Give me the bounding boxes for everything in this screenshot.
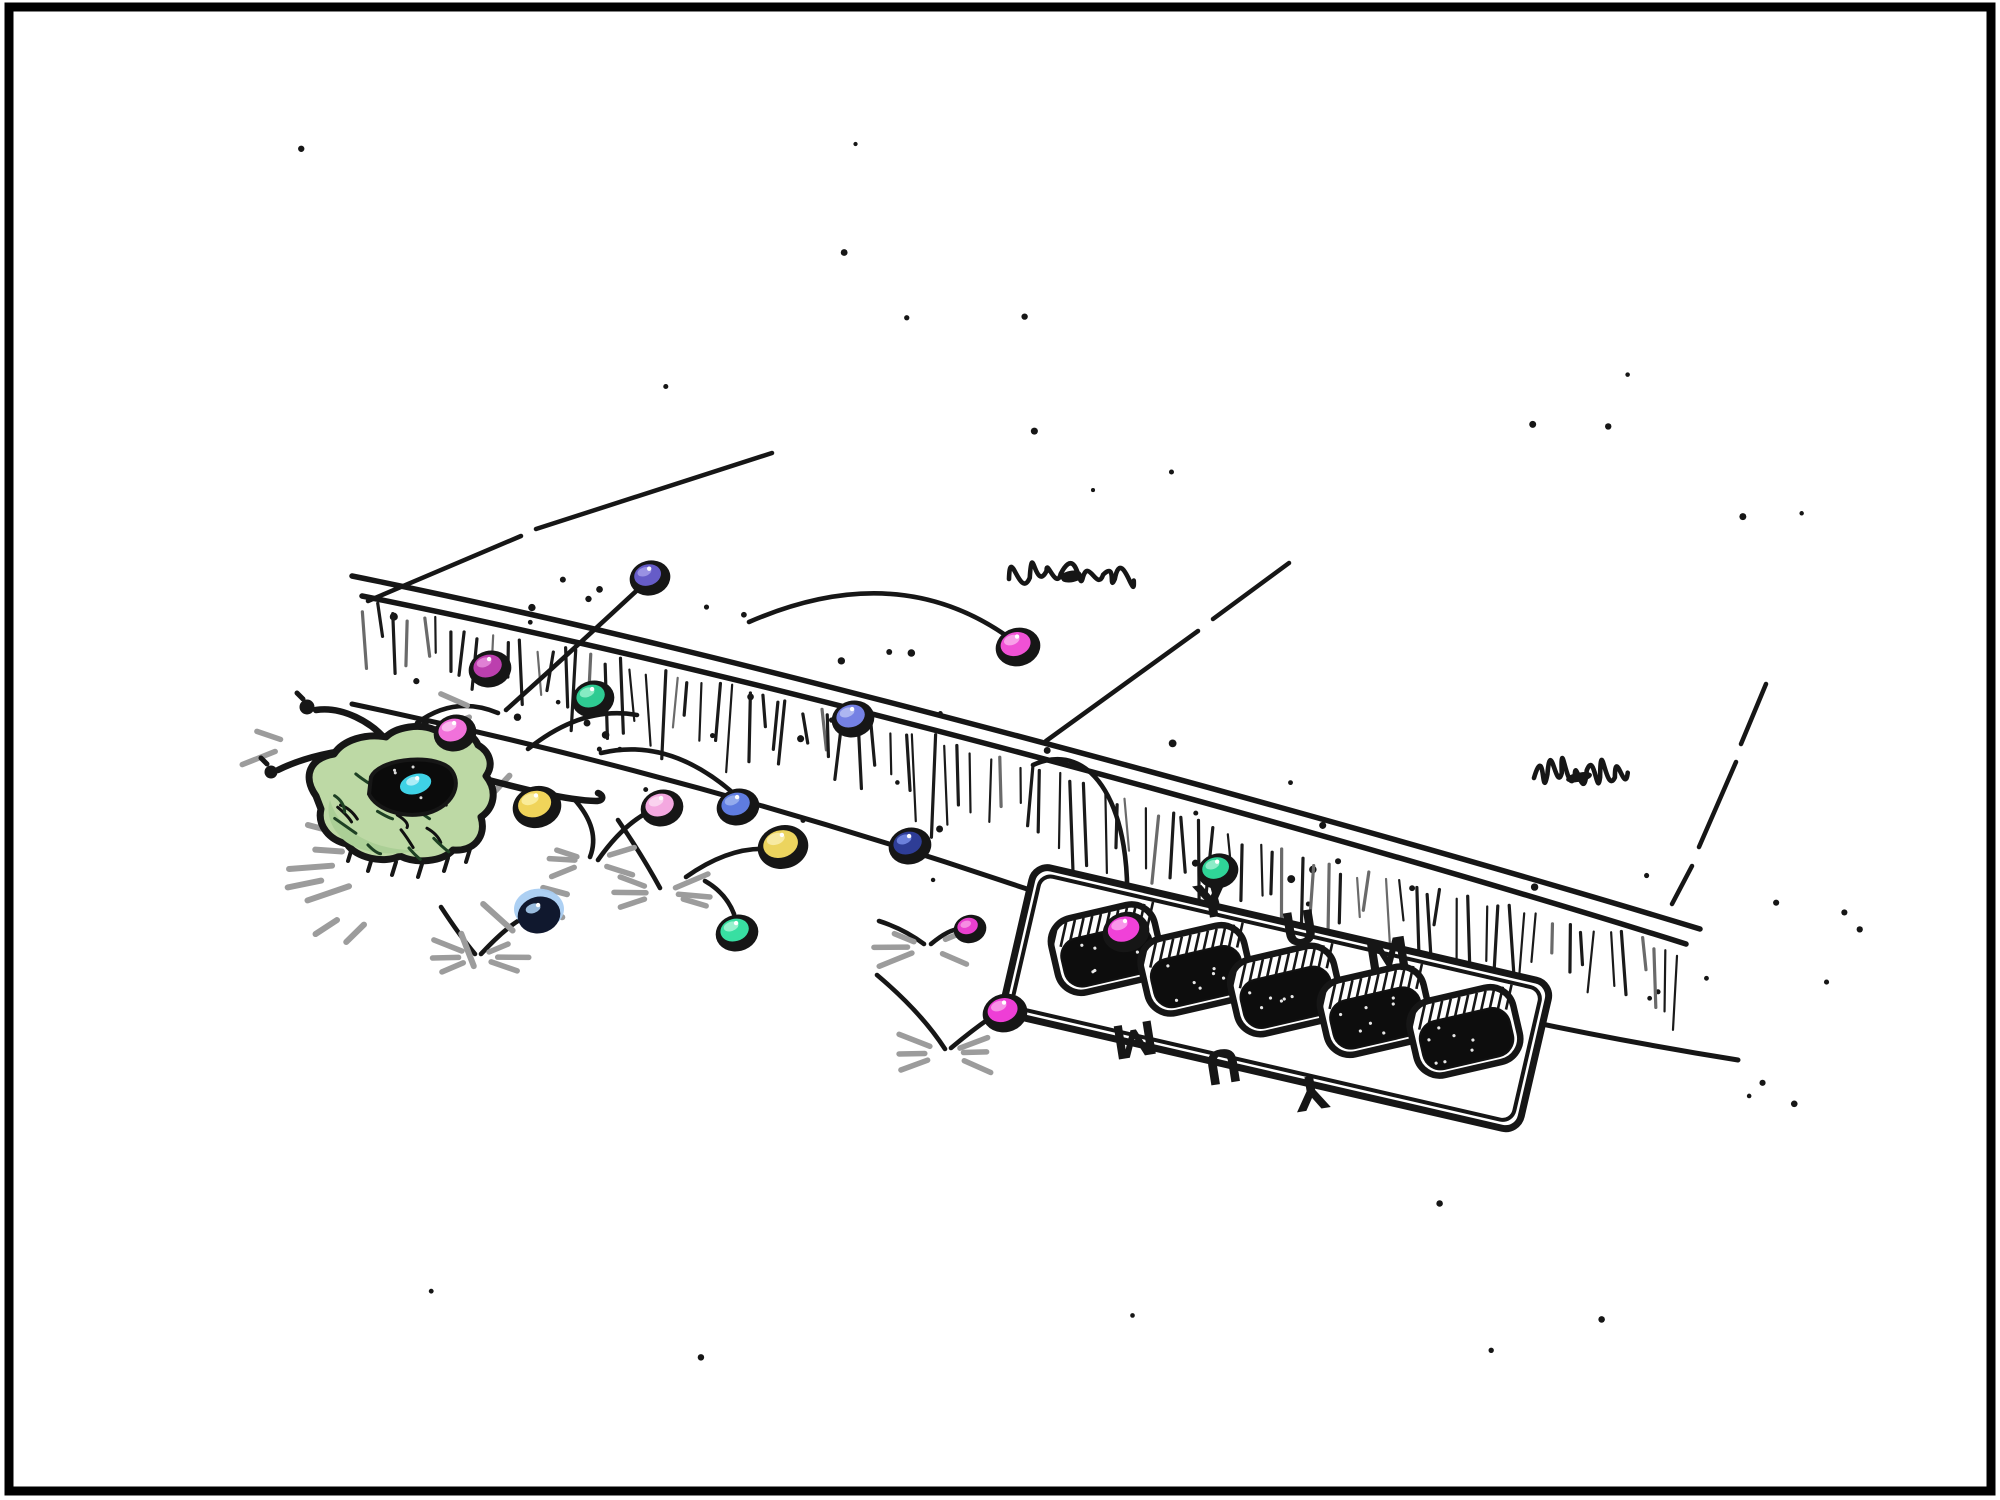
pouch-halo-stroke bbox=[316, 920, 338, 934]
hatch-stroke bbox=[1357, 878, 1360, 917]
texture-dot bbox=[1647, 996, 1652, 1001]
hatch-stroke bbox=[1643, 938, 1646, 970]
bead-glint bbox=[850, 707, 854, 711]
hatch-stroke bbox=[1399, 880, 1403, 920]
hatch-stroke bbox=[1170, 813, 1174, 878]
hatch-stroke bbox=[1339, 874, 1340, 922]
pouch-halo-stroke bbox=[307, 886, 349, 900]
texture-dot bbox=[1704, 976, 1709, 981]
bead bbox=[514, 889, 565, 938]
bead-glint bbox=[452, 721, 456, 725]
hatch-stroke bbox=[1665, 950, 1666, 1011]
impact-splash bbox=[901, 1060, 928, 1070]
texture-dot bbox=[1409, 885, 1415, 891]
texture-dot bbox=[1531, 883, 1538, 890]
cartoon-canvas: Y U M M U Y bbox=[0, 0, 2000, 1500]
texture-dot bbox=[1287, 875, 1295, 883]
bead-glint bbox=[590, 687, 594, 691]
bead-glint bbox=[735, 795, 739, 799]
texture-dot bbox=[1791, 1100, 1798, 1107]
impact-splash bbox=[434, 940, 462, 951]
impact-splash bbox=[433, 957, 459, 958]
texture-dot bbox=[663, 384, 668, 389]
texture-dot bbox=[886, 649, 892, 655]
hatch-stroke bbox=[538, 652, 542, 695]
texture-dot bbox=[1773, 900, 1779, 906]
texture-dot bbox=[1031, 428, 1038, 435]
texture-dot bbox=[1288, 780, 1293, 785]
opening-speck bbox=[419, 796, 422, 799]
bead-glint bbox=[780, 833, 784, 837]
texture-dot bbox=[853, 142, 857, 146]
hatch-stroke bbox=[773, 702, 778, 749]
hatch-stroke bbox=[957, 745, 959, 804]
joint-line bbox=[1046, 563, 1289, 741]
texture-dot bbox=[931, 878, 935, 882]
texture-dot bbox=[584, 720, 591, 727]
texture-dot bbox=[741, 612, 747, 618]
texture-dot bbox=[797, 735, 804, 742]
impact-splash bbox=[491, 962, 517, 971]
impact-splash bbox=[899, 1053, 925, 1054]
hatch-stroke bbox=[989, 759, 991, 821]
hatch-stroke bbox=[1271, 852, 1272, 894]
impact-splash bbox=[683, 899, 706, 906]
bead bbox=[713, 784, 764, 830]
hatch-stroke bbox=[1588, 932, 1594, 993]
texture-dot bbox=[1625, 372, 1630, 377]
impact-splash bbox=[441, 694, 467, 706]
hatch-stroke bbox=[393, 614, 395, 674]
hatch-stroke bbox=[1181, 817, 1185, 872]
trajectory-arc bbox=[601, 749, 732, 792]
hatch-stroke bbox=[1083, 783, 1086, 865]
grate-letter: M bbox=[1108, 1009, 1162, 1069]
bead-glint bbox=[536, 903, 540, 907]
pouch-fringe bbox=[392, 862, 396, 875]
texture-dot bbox=[1335, 858, 1341, 864]
hatch-stroke bbox=[970, 753, 971, 812]
texture-dot bbox=[1021, 313, 1027, 319]
hatch-stroke bbox=[1241, 845, 1242, 900]
texture-dot bbox=[298, 146, 304, 152]
ink-scribbles bbox=[1009, 563, 1628, 785]
hatch-stroke bbox=[1519, 913, 1524, 979]
texture-dot bbox=[528, 604, 535, 611]
impact-splash bbox=[678, 894, 710, 897]
hatch-stroke bbox=[646, 675, 651, 746]
hatch-stroke bbox=[1261, 845, 1262, 896]
impact-splash bbox=[607, 866, 633, 874]
impact-splash bbox=[257, 731, 281, 739]
bead-glint bbox=[1002, 1000, 1006, 1004]
texture-dot bbox=[1319, 822, 1326, 829]
trajectory-arc bbox=[879, 921, 924, 944]
bead-glint bbox=[1215, 859, 1219, 863]
hatch-stroke bbox=[662, 671, 666, 759]
hatch-stroke bbox=[620, 658, 623, 733]
bead-glint bbox=[415, 776, 419, 780]
hatch-stroke bbox=[1531, 913, 1535, 961]
hatch-stroke bbox=[1552, 924, 1553, 953]
texture-dot bbox=[1759, 1080, 1765, 1086]
impact-splash bbox=[899, 1034, 930, 1046]
texture-dot bbox=[1091, 488, 1095, 492]
bead-glint bbox=[1123, 919, 1127, 923]
texture-dot bbox=[841, 249, 848, 256]
impact-splash bbox=[943, 954, 967, 964]
texture-dot bbox=[1605, 423, 1611, 429]
texture-dot bbox=[585, 596, 591, 602]
hatch-stroke bbox=[378, 603, 383, 636]
texture-dot bbox=[1489, 1348, 1494, 1353]
cord-knot bbox=[265, 766, 278, 779]
hatch-stroke bbox=[425, 618, 430, 656]
texture-dot bbox=[514, 713, 521, 720]
impact-splash bbox=[620, 877, 644, 886]
hatch-stroke bbox=[459, 632, 464, 675]
hatch-stroke bbox=[907, 735, 910, 790]
texture-dot bbox=[413, 678, 419, 684]
cord-knot-tail bbox=[297, 693, 303, 699]
texture-dot bbox=[698, 1354, 704, 1360]
impact-splash bbox=[552, 867, 575, 876]
hatch-stroke bbox=[749, 693, 750, 762]
texture-dot bbox=[1193, 811, 1198, 816]
hatch-stroke bbox=[1654, 949, 1656, 1008]
trajectory-arc bbox=[749, 593, 1015, 642]
bead-glint bbox=[907, 834, 911, 838]
hatch-stroke bbox=[763, 695, 765, 726]
opening-speck bbox=[393, 769, 396, 772]
cord-knot bbox=[300, 700, 315, 715]
impact-splash bbox=[964, 1061, 990, 1073]
hatch-stroke bbox=[716, 683, 721, 740]
hatch-stroke bbox=[890, 733, 891, 774]
opening-speck bbox=[394, 771, 397, 774]
texture-dot bbox=[908, 649, 916, 657]
opening-speck bbox=[412, 765, 415, 768]
texture-dot bbox=[1130, 1313, 1135, 1318]
cord-knot-tail bbox=[261, 758, 267, 764]
texture-dot bbox=[1436, 1200, 1443, 1207]
pouch-halo-stroke bbox=[289, 866, 332, 869]
hatch-stroke bbox=[1363, 872, 1369, 910]
hatch-stroke bbox=[1070, 781, 1073, 876]
hatch-stroke bbox=[778, 701, 784, 764]
joint-line bbox=[1672, 684, 1766, 904]
pouch-halo-stroke bbox=[346, 925, 364, 942]
hatch-stroke bbox=[406, 621, 407, 666]
hatch-stroke bbox=[1509, 905, 1514, 978]
texture-dot bbox=[556, 700, 561, 705]
texture-dot bbox=[1169, 469, 1174, 474]
bead bbox=[712, 910, 763, 956]
sidewalk-expansion-joints bbox=[368, 453, 1766, 904]
hatch-stroke bbox=[1000, 757, 1001, 806]
bead-glint bbox=[1015, 634, 1019, 638]
bead bbox=[951, 911, 990, 946]
bead bbox=[753, 820, 813, 874]
impact-splash bbox=[620, 899, 644, 907]
hatch-stroke bbox=[912, 734, 916, 821]
texture-dot bbox=[1644, 873, 1649, 878]
pouch-halo-stroke bbox=[483, 904, 512, 930]
impact-splash bbox=[557, 850, 577, 857]
hatch-stroke bbox=[1434, 889, 1439, 924]
hatch-stroke bbox=[726, 685, 732, 772]
cartoon-page: Y U M M U Y bbox=[0, 0, 2000, 1500]
hatch-stroke bbox=[1028, 767, 1033, 825]
texture-dot bbox=[429, 1289, 434, 1294]
hatch-stroke bbox=[1580, 933, 1582, 965]
hatch-stroke bbox=[1486, 906, 1487, 960]
hatch-stroke bbox=[673, 678, 678, 728]
pouch-fringe bbox=[418, 864, 422, 877]
texture-dot bbox=[1841, 909, 1847, 915]
texture-dot bbox=[1739, 513, 1746, 520]
hatch-stroke bbox=[1152, 816, 1159, 883]
texture-dot bbox=[936, 826, 943, 833]
pouch-halo-stroke bbox=[315, 850, 342, 852]
hatch-stroke bbox=[1673, 956, 1677, 1030]
texture-dot bbox=[904, 315, 909, 320]
hatch-stroke bbox=[1611, 932, 1614, 986]
texture-dot bbox=[643, 787, 648, 792]
bead-glint bbox=[647, 566, 651, 570]
bead-glint bbox=[734, 921, 738, 925]
grate-letter: U bbox=[1277, 899, 1322, 958]
texture-dot bbox=[560, 577, 566, 583]
hatch-stroke bbox=[1105, 789, 1107, 873]
hatch-stroke bbox=[1059, 773, 1060, 848]
texture-dot bbox=[1598, 1316, 1605, 1323]
impact-splash bbox=[879, 953, 912, 966]
hatch-stroke bbox=[1038, 770, 1039, 831]
hatch-stroke bbox=[699, 683, 701, 741]
impact-splash bbox=[442, 963, 463, 972]
texture-dot bbox=[1529, 421, 1536, 428]
bead bbox=[885, 823, 936, 869]
grate-letter: U bbox=[1200, 1036, 1245, 1095]
hatch-stroke bbox=[684, 683, 687, 715]
hatch-stroke bbox=[931, 735, 935, 838]
impact-splash bbox=[610, 848, 635, 856]
bead-glint bbox=[534, 793, 538, 797]
texture-dot bbox=[596, 586, 603, 593]
texture-dot bbox=[1747, 1094, 1752, 1099]
texture-dot bbox=[528, 620, 533, 625]
texture-dot bbox=[1824, 980, 1829, 985]
texture-dot bbox=[1044, 747, 1051, 754]
texture-dot bbox=[1169, 739, 1177, 747]
pouch-halo-stroke bbox=[288, 881, 322, 888]
texture-dot bbox=[704, 604, 709, 609]
texture-dot bbox=[895, 780, 900, 785]
grate-letter: M bbox=[1361, 926, 1415, 986]
trajectory-arc bbox=[574, 799, 593, 857]
trajectory-arc bbox=[528, 713, 637, 749]
hatch-stroke bbox=[1621, 932, 1626, 995]
impact-splash bbox=[549, 859, 575, 860]
hatch-stroke bbox=[944, 746, 947, 825]
bead bbox=[637, 785, 688, 831]
texture-dot bbox=[1857, 926, 1863, 932]
texture-dot bbox=[1799, 511, 1803, 515]
texture-dot bbox=[838, 657, 845, 664]
bead-glint bbox=[487, 657, 491, 661]
hatch-stroke bbox=[362, 612, 366, 668]
bead-glint bbox=[659, 796, 663, 800]
impact-splash bbox=[964, 1052, 987, 1053]
joint-line bbox=[368, 453, 772, 601]
hatch-stroke bbox=[827, 715, 828, 757]
